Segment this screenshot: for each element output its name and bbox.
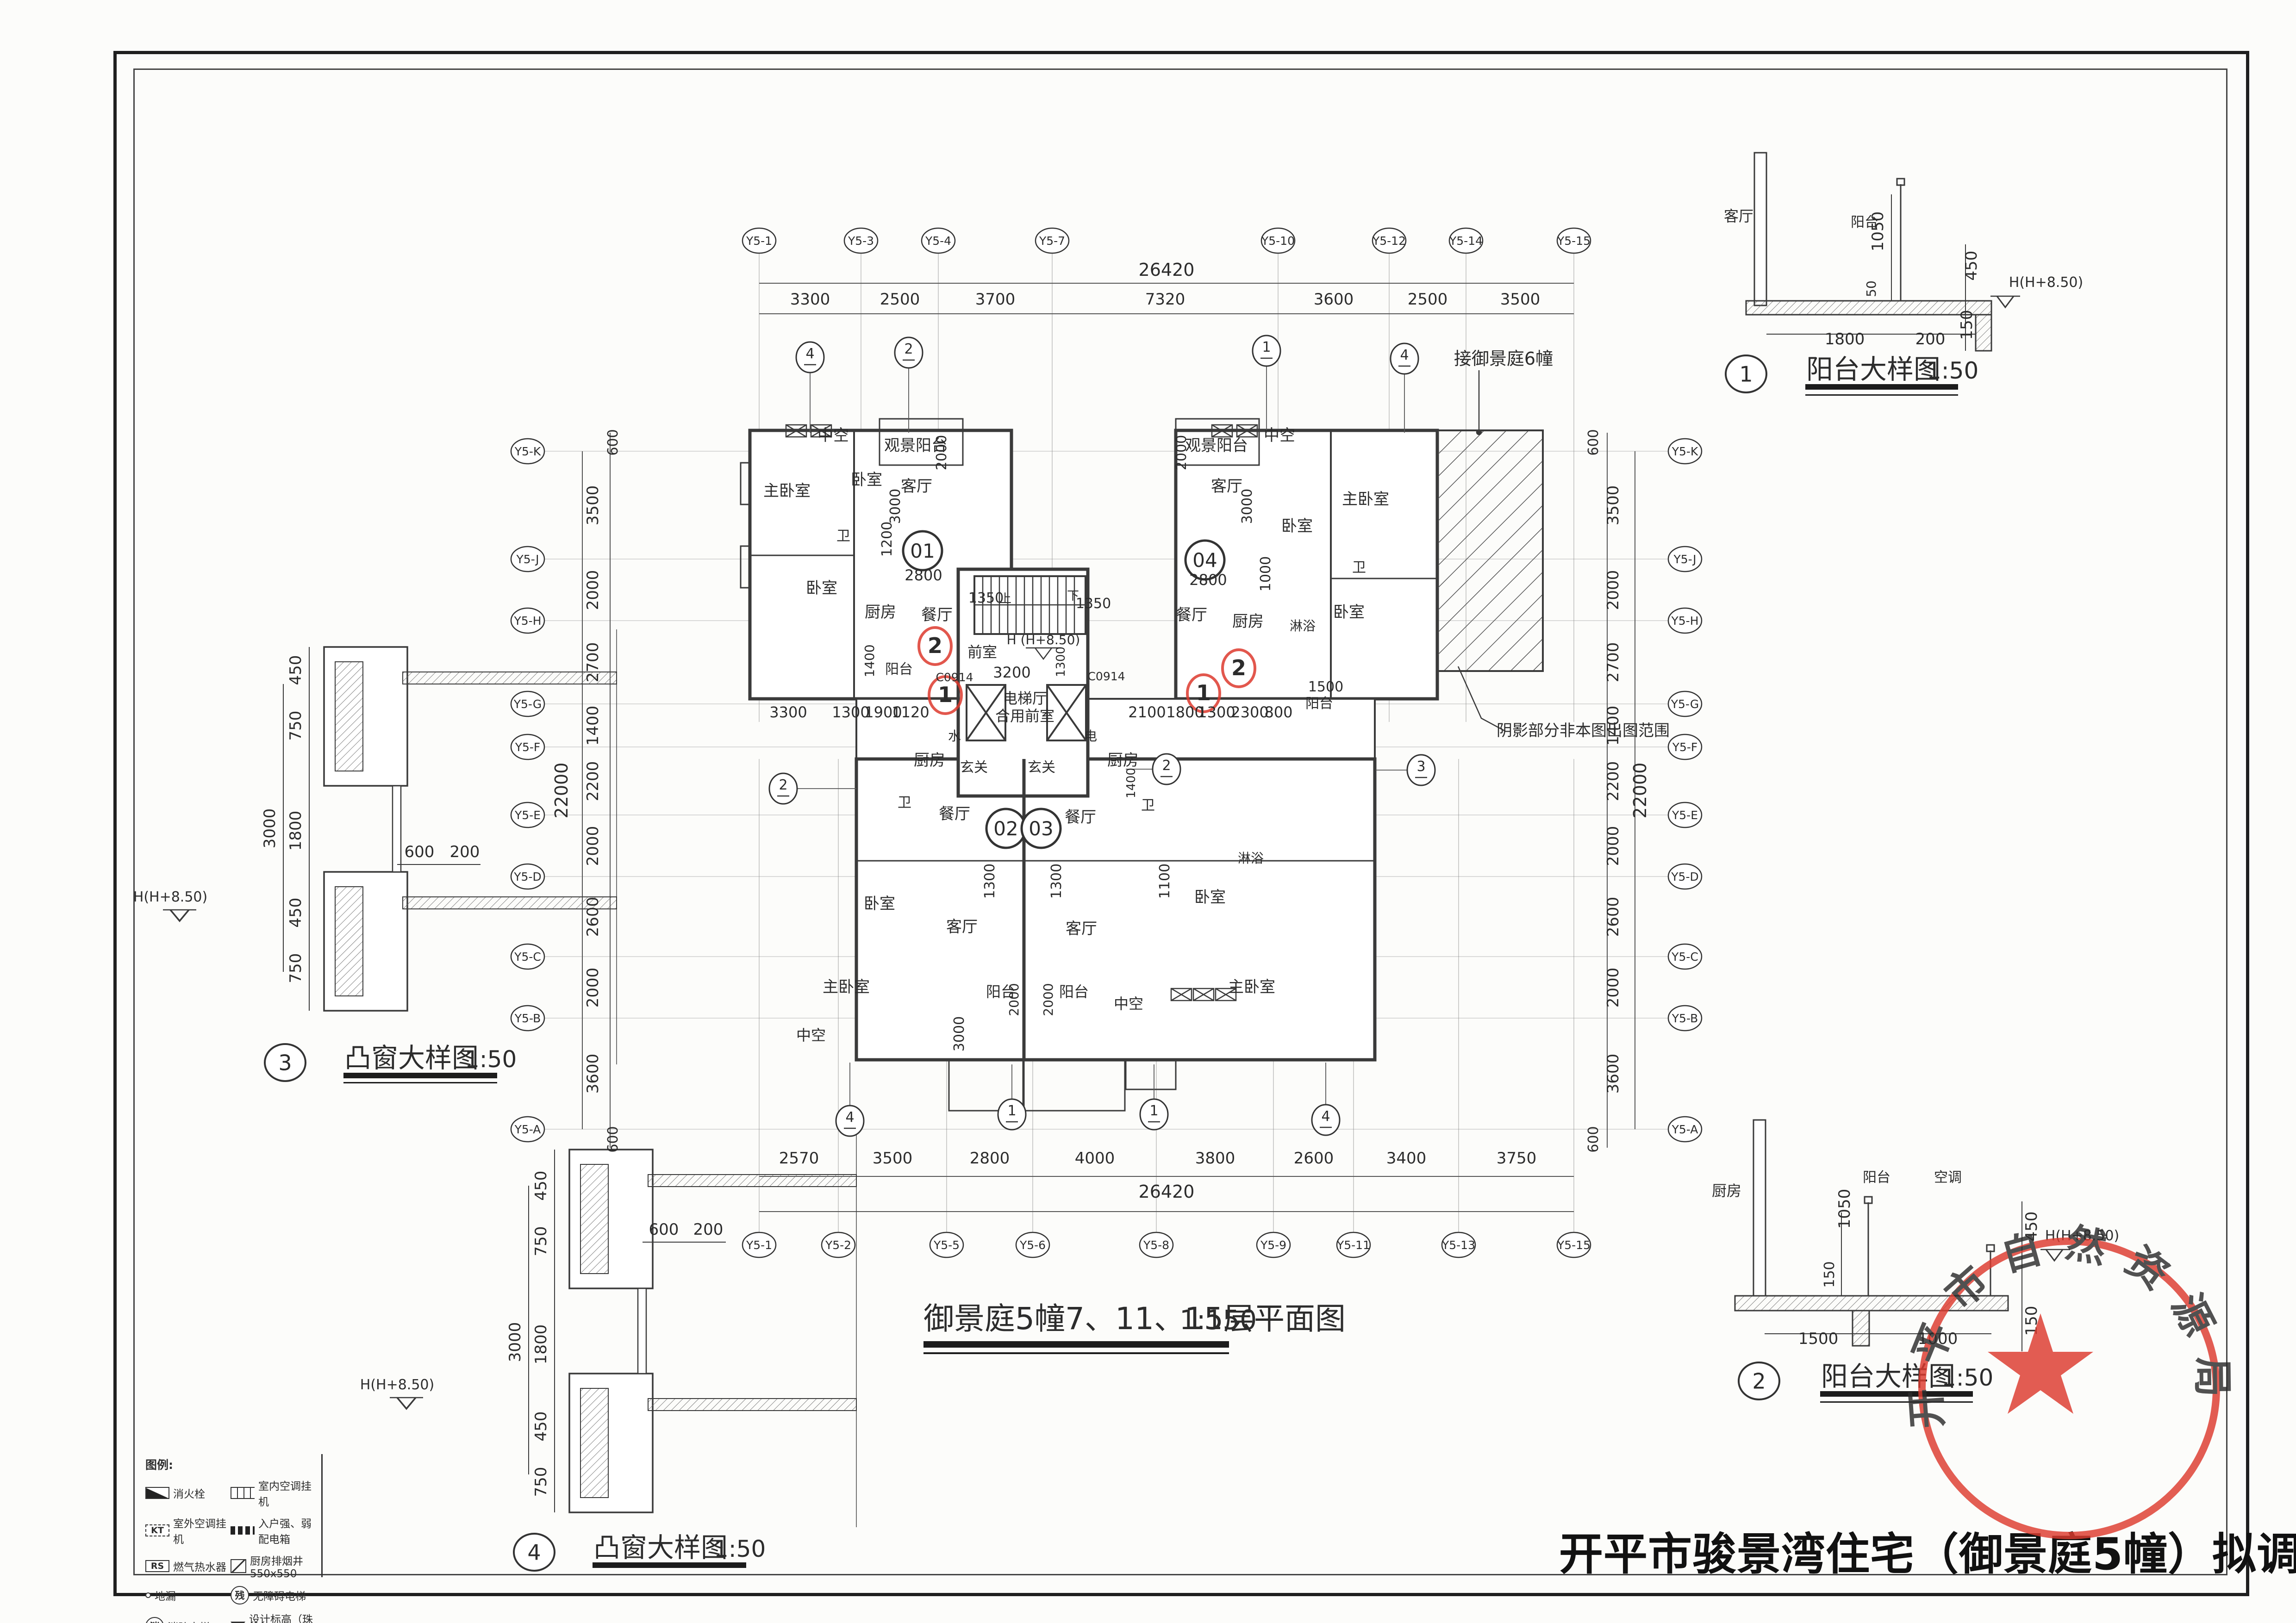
dim-text: 600 [605, 1126, 621, 1152]
plan-label: 1120 [892, 703, 929, 721]
plan-label: 1100 [1157, 864, 1173, 899]
detail-label: 600 [405, 843, 435, 861]
bubble-label: 02 [993, 817, 1018, 840]
dim-text: 3500 [873, 1149, 913, 1168]
plan-label: 1300 [982, 864, 998, 899]
detail-label: 600 [649, 1220, 679, 1239]
section-mark-number: 2 [1162, 758, 1171, 774]
plan-label: 主卧室 [763, 482, 811, 500]
plan-label: 1300 [1048, 864, 1065, 899]
grid-dims-left: 350020002700140022002000260020003600 [584, 485, 602, 1094]
legend-symbol-icon: KT [145, 1524, 169, 1536]
plan-label: 卧室 [851, 471, 882, 489]
bubble-label: 3 [278, 1051, 292, 1076]
plan-label: 卧室 [1333, 603, 1365, 622]
dim-text: 3400 [1386, 1149, 1427, 1168]
detail-label: 750 [287, 953, 305, 983]
dim-text: 2600 [584, 897, 602, 937]
bubble-label: Y5-15 [1557, 234, 1591, 248]
detail-label: 750 [532, 1467, 550, 1497]
bubble-label: Y5-K [1672, 445, 1698, 458]
plan-label: 淋浴 [1290, 618, 1316, 634]
detail-3-scale: 1:50 [465, 1046, 517, 1073]
plan-label: 厨房 [1232, 612, 1264, 631]
plan-label: 厨房 [1107, 751, 1139, 770]
plan-label: 2800 [1189, 571, 1227, 589]
plan-note: 阴影部分非本图出图范围 [1497, 721, 1670, 740]
detail-label: 200 [693, 1220, 724, 1239]
bubble-label: 01 [910, 540, 935, 562]
bubble-label: 04 [1192, 549, 1217, 572]
drawing-canvas: Y5-1Y5-3Y5-4Y5-7Y5-10Y5-12Y5-14Y5-15 Y5-… [0, 0, 2296, 1623]
bubble-label: Y5-D [1671, 870, 1698, 883]
bubble-label: Y5-7 [1039, 234, 1065, 248]
bubble-label: Y5-2 [825, 1238, 851, 1252]
detail-label: 450 [287, 898, 305, 928]
plan-label: 餐厅 [939, 805, 970, 823]
bubble-label: Y5-15 [1557, 1238, 1591, 1252]
dim-text: 600 [1585, 429, 1602, 455]
detail-label: H(H+8.50) [133, 889, 207, 905]
bubble-label: Y5-E [514, 808, 541, 822]
document-title: 开平市骏景湾住宅（御景庭5幢）拟调整方案公示 [1559, 1519, 2240, 1574]
detail-4-title: 凸窗大样图 [593, 1532, 728, 1563]
detail-label: 150 [1958, 310, 1976, 340]
dim-text: 3500 [1500, 290, 1541, 309]
bubble-label: Y5-1 [746, 1238, 772, 1252]
plan-label: 卧室 [1281, 517, 1313, 535]
legend-symbol-icon: 消 [145, 1617, 164, 1623]
plan-label: 中空 [796, 1026, 826, 1044]
bubble-label: Y5-G [1671, 697, 1699, 711]
plan-label: 1000 [1258, 556, 1274, 591]
plan-label: 2800 [905, 566, 942, 584]
plan-label: 卧室 [864, 895, 895, 913]
plan-label: 餐厅 [921, 606, 953, 624]
plan-label: 主卧室 [823, 978, 870, 996]
legend-item: 消 消防电梯 [145, 1611, 228, 1623]
dim-text: 2000 [1604, 826, 1622, 866]
dim-text: 2800 [970, 1149, 1010, 1168]
bubble-label: Y5-9 [1260, 1238, 1286, 1252]
plan-label: 卧室 [1194, 888, 1226, 907]
section-mark-number: 1 [1149, 1103, 1158, 1119]
dim-text: 2600 [1294, 1149, 1334, 1168]
bubble-label: Y5-A [514, 1123, 541, 1136]
detail-label: 客厅 [1724, 207, 1753, 225]
plan-label: 客厅 [1066, 920, 1097, 938]
detail-label: 450 [1962, 251, 1981, 281]
red-callout-number: 1 [938, 682, 953, 707]
legend-item-label: 地漏 [155, 1587, 176, 1603]
bubble-label: Y5-B [1672, 1012, 1698, 1025]
section-mark-number: 4 [1400, 347, 1409, 363]
detail-1-scale: 1:50 [1927, 357, 1978, 384]
plan-label: 3300 [769, 703, 807, 721]
grid-bubbles-top: Y5-1Y5-3Y5-4Y5-7Y5-10Y5-12Y5-14Y5-15 [742, 228, 1591, 253]
plan-label: 2100 [1128, 703, 1166, 721]
bubble-label: Y5-E [1672, 808, 1698, 822]
legend-item-label: 消火栓 [173, 1485, 205, 1501]
legend-symbol-icon: RS [145, 1560, 169, 1572]
detail-label: 1000 [1918, 1330, 1958, 1348]
legend-symbol-icon [145, 1487, 169, 1499]
legend-title: 图例: [145, 1456, 318, 1473]
bubble-label: Y5-3 [848, 234, 874, 248]
drawing-sheet: Y5-1Y5-3Y5-4Y5-7Y5-10Y5-12Y5-14Y5-15 Y5-… [0, 0, 2296, 1623]
dim-text: 3800 [1195, 1149, 1235, 1168]
plan-label: 2000 [934, 435, 950, 470]
detail-label: 750 [287, 711, 305, 741]
plan-label: 1350 [1076, 596, 1111, 612]
detail-1-title: 阳台大样图 [1806, 354, 1940, 385]
bubble-label: 1 [1739, 362, 1753, 387]
detail-label: 阳台 [1863, 1169, 1890, 1186]
detail-2-labels: 厨房阳台空调1050150450150H(H+8.50)15001000 [1712, 1169, 2119, 1348]
plan-scale: 1:150 [1179, 1304, 1257, 1336]
plan-label: 1500 [1308, 679, 1343, 695]
dim-text: 600 [1585, 1126, 1602, 1152]
detail-label: H(H+8.50) [2045, 1228, 2119, 1244]
bubble-label: Y5-J [1673, 553, 1697, 566]
legend-item-label: 消防电梯 [168, 1618, 210, 1623]
bubble-label: Y5-H [1671, 614, 1699, 628]
plan-label: 中空 [1114, 995, 1143, 1013]
detail-1-labels: 客厅阳台105050450150H(H+8.50)1800200 [1724, 207, 2083, 348]
detail-3-labels: 45075018004507503000600200H(H+8.50) [133, 655, 480, 983]
detail-label: 200 [1915, 330, 1946, 348]
dim-text: 3600 [584, 1054, 602, 1094]
bubble-label: Y5-D [513, 870, 541, 883]
plan-label: 卫 [836, 528, 850, 544]
plan-label: 上 [999, 592, 1011, 606]
dim-text: 7320 [1145, 290, 1185, 309]
bubble-label: 4 [527, 1540, 541, 1565]
dim-text: 26420 [1139, 1181, 1195, 1202]
detail-label: H(H+8.50) [360, 1377, 434, 1393]
plan-label: 水 [948, 728, 961, 744]
legend-symbol-icon [145, 1592, 151, 1598]
bubble-label: 2 [1752, 1369, 1766, 1394]
bubble-label: Y5-F [515, 740, 541, 754]
dim-text: 2500 [1408, 290, 1448, 309]
bubble-label: Y5-C [1671, 950, 1698, 964]
plan-label: 厨房 [865, 603, 896, 622]
detail-label: 450 [2022, 1212, 2041, 1242]
legend-item: 残 无障碍电梯 [231, 1586, 318, 1604]
dim-text: 3500 [584, 485, 602, 526]
legend-symbol-icon: 残 [231, 1586, 249, 1604]
plan-label: 1400 [1124, 768, 1138, 798]
plan-label: 厨房 [914, 751, 945, 770]
detail-label: 450 [287, 655, 305, 685]
bubble-label: Y5-J [516, 553, 539, 566]
dim-text: 3600 [1604, 1054, 1622, 1094]
plan-label: 卫 [1352, 560, 1366, 576]
grid-bubbles-left: Y5-KY5-JY5-HY5-GY5-FY5-EY5-DY5-CY5-BY5-A [511, 439, 544, 1142]
grid-bubbles-right: Y5-KY5-JY5-HY5-GY5-FY5-EY5-DY5-CY5-BY5-A [1668, 439, 1702, 1142]
bubble-label: Y5-H [514, 614, 542, 628]
section-mark-number: 1 [1262, 339, 1271, 355]
bubble-label: Y5-8 [1143, 1238, 1169, 1252]
plan-label: 电 [1084, 728, 1097, 744]
plan-label: 中空 [1264, 426, 1295, 445]
dim-text: 2570 [779, 1149, 819, 1168]
plan-label: 主卧室 [1228, 978, 1275, 996]
plan-label: 2000 [1041, 983, 1056, 1016]
plan-label: 800 [1264, 703, 1292, 721]
dim-text: 1400 [1604, 706, 1622, 746]
dim-text: 600 [605, 429, 621, 455]
plan-label: 2000 [1173, 435, 1190, 470]
legend-item: RS 燃气热水器 [145, 1552, 228, 1580]
plan-label: 主卧室 [1342, 490, 1389, 509]
detail-label: H(H+8.50) [2009, 274, 2083, 291]
detail-label: 450 [532, 1171, 550, 1201]
red-callout-number: 2 [928, 633, 942, 658]
legend-symbol-icon [231, 1559, 246, 1573]
detail-label: 450 [532, 1412, 550, 1442]
plan-label: 1350 [968, 590, 1004, 606]
detail-2-scale: 1:50 [1941, 1364, 1993, 1391]
dim-text: 2000 [584, 968, 602, 1008]
detail-label: 1500 [1798, 1330, 1839, 1348]
bubble-label: Y5-12 [1372, 234, 1406, 248]
bubble-label: Y5-B [514, 1012, 541, 1025]
legend-item: 地漏 [145, 1586, 228, 1604]
plan-label: 卫 [1141, 797, 1155, 814]
dim-text: 4000 [1075, 1149, 1115, 1168]
legend-item-label: 无障碍电梯 [253, 1587, 306, 1603]
bubble-label: Y5-6 [1019, 1238, 1046, 1252]
detail-label: 50 [1864, 280, 1879, 297]
section-mark-number: 2 [779, 777, 787, 793]
detail-label: 3000 [261, 808, 279, 849]
grid-dims-right: 350020002700140022002000260020003600 [1604, 485, 1622, 1094]
detail-label: 1800 [532, 1325, 550, 1365]
plan-label: 卧室 [806, 579, 837, 597]
plan-label: 观景阳台 [1185, 436, 1248, 455]
legend-item-label: 室外空调挂机 [173, 1515, 228, 1546]
detail-4-bay-window-section [390, 1134, 856, 1568]
plan-label: 阳台 [885, 661, 913, 678]
plan-label: H (H+8.50) [1007, 632, 1080, 647]
legend-item-label: 燃气热水器 [173, 1558, 226, 1574]
plan-label: 3000 [951, 1016, 967, 1051]
detail-label: 200 [450, 843, 480, 861]
plan-label: 前室 [967, 643, 997, 661]
grid-dims-bottom: 25703500280040003800260034003750 [779, 1149, 1537, 1168]
dim-text: 3300 [790, 290, 830, 309]
section-mark-number: 3 [1416, 759, 1425, 775]
legend-symbol-icon [231, 1487, 255, 1499]
plan-label: 电梯厅 [1003, 690, 1047, 707]
grid-bubbles-bottom: Y5-1Y5-2Y5-5Y5-6Y5-8Y5-9Y5-11Y5-13Y5-15 [742, 1232, 1591, 1257]
legend-panel: 图例: 消火栓 室内空调挂机 KT 室外空调挂机 [141, 1454, 323, 1577]
plan-label: 合用前室 [995, 707, 1054, 725]
plan-label: 餐厅 [1176, 606, 1207, 624]
dim-text: 2600 [1604, 897, 1622, 937]
detail-4-scale: 1:50 [714, 1536, 766, 1562]
grid-dims-top: 3300250037007320360025003500 [790, 290, 1541, 309]
dim-text: 2200 [584, 761, 602, 802]
plan-label: C0914 [1087, 670, 1125, 683]
section-mark-number: 1 [1007, 1103, 1016, 1119]
plan-label: 客厅 [901, 477, 932, 496]
dim-text: 3750 [1497, 1149, 1537, 1168]
legend-item: 厨房排烟井550x550 [231, 1552, 318, 1580]
legend-item-label: 设计标高（珠基高程） [249, 1611, 318, 1623]
bubble-label: Y5-14 [1449, 234, 1483, 248]
plan-label: 阳台 [1305, 696, 1333, 712]
dim-text: 22000 [551, 763, 572, 819]
detail-label: 空调 [1934, 1169, 1962, 1186]
detail-label: 1800 [1825, 330, 1865, 348]
plan-label: 阳台 [1059, 983, 1089, 1001]
red-callout-number: 1 [1196, 680, 1211, 705]
detail-label: 3000 [506, 1322, 524, 1362]
bubble-label: Y5-11 [1336, 1238, 1370, 1252]
plan-note: 接御景庭6幢 [1454, 348, 1553, 369]
detail-label: 150 [1822, 1261, 1838, 1287]
bubble-label: Y5-G [513, 697, 542, 711]
plan-label: 3000 [1239, 489, 1255, 524]
detail-label: 750 [532, 1226, 550, 1256]
bubble-label: Y5-10 [1261, 234, 1295, 248]
dim-text: 3500 [1604, 485, 1622, 526]
legend-symbol-icon [231, 1526, 255, 1535]
legend-item: KT 室外空调挂机 [145, 1515, 228, 1546]
bubble-label: Y5-C [514, 950, 541, 964]
plan-label: 客厅 [946, 918, 978, 936]
plan-label: 玄关 [1028, 759, 1055, 776]
red-callout-number: 2 [1231, 655, 1246, 680]
plan-label: 1300 [1054, 647, 1068, 677]
detail-3-bay-window-section [163, 629, 617, 1083]
detail-label: 厨房 [1712, 1182, 1741, 1200]
detail-2-title: 阳台大样图 [1821, 1361, 1955, 1392]
dim-text: 22000 [1630, 763, 1650, 819]
dim-text: 2000 [1604, 968, 1622, 1008]
bubble-label: Y5-F [1672, 740, 1698, 754]
plan-label: 淋浴 [1238, 851, 1264, 866]
dim-text: 3700 [975, 290, 1016, 309]
plan-label: 1400 [862, 644, 877, 677]
legend-item-label: 入户强、弱配电箱 [258, 1515, 318, 1546]
legend-item: 设计标高（珠基高程） [231, 1611, 318, 1623]
plan-label: 客厅 [1211, 477, 1242, 496]
plan-title: 御景庭5幢7、11、15层平面图 [923, 1301, 1346, 1337]
plan-label: C0914 [936, 671, 973, 684]
plan-label: 中空 [817, 426, 849, 445]
dim-text: 2000 [1604, 570, 1622, 610]
dim-text: 2500 [880, 290, 920, 309]
section-mark-number: 4 [1321, 1108, 1330, 1125]
plan-label: 卫 [898, 795, 911, 811]
section-mark-number: 4 [845, 1109, 854, 1126]
bubble-label: Y5-4 [925, 234, 951, 248]
plan-label: 1200 [879, 522, 895, 557]
legend-item-label: 室内空调挂机 [258, 1477, 318, 1509]
detail-label: 150 [2022, 1306, 2041, 1336]
section-mark-number: 4 [805, 346, 814, 362]
bubble-label: Y5-A [1672, 1123, 1698, 1136]
section-mark-number: 2 [904, 341, 913, 357]
legend-item: 室内空调挂机 [231, 1477, 318, 1509]
bubble-label: Y5-13 [1441, 1238, 1475, 1252]
dim-text: 2000 [584, 826, 602, 866]
plan-label: 餐厅 [1065, 808, 1096, 827]
detail-3-title: 凸窗大样图 [344, 1042, 479, 1074]
detail-label: 1050 [1835, 1189, 1854, 1229]
bubble-label: Y5-5 [933, 1238, 960, 1252]
plan-label: 1300 [1198, 703, 1235, 721]
plan-label: 2300 [1231, 703, 1268, 721]
dim-text: 2000 [584, 570, 602, 610]
dim-text: 2200 [1604, 761, 1622, 802]
bubble-label: Y5-1 [746, 234, 772, 248]
legend-item: 消火栓 [145, 1477, 228, 1509]
detail-4-labels: 45075018004507503000600200H(H+8.50) [360, 1171, 724, 1497]
dim-text: 3600 [1314, 290, 1354, 309]
bubble-label: 03 [1029, 817, 1053, 840]
bubble-label: Y5-K [514, 445, 541, 458]
dim-text: 26420 [1139, 260, 1195, 280]
detail-label: 1050 [1869, 211, 1887, 252]
legend-items: 消火栓 室内空调挂机 KT 室外空调挂机 入户强、弱配电箱 [145, 1477, 318, 1623]
plan-label: 3000 [887, 489, 904, 524]
plan-label: 2000 [1006, 983, 1022, 1016]
plan-label: 玄关 [960, 759, 988, 776]
detail-label: 1800 [287, 811, 305, 851]
dim-text: 2700 [584, 642, 602, 683]
legend-item: 入户强、弱配电箱 [231, 1515, 318, 1546]
legend-item-label: 厨房排烟井550x550 [250, 1552, 318, 1580]
dim-text: 2700 [1604, 642, 1622, 683]
plan-label: 3200 [993, 664, 1030, 681]
dim-text: 1400 [584, 706, 602, 746]
